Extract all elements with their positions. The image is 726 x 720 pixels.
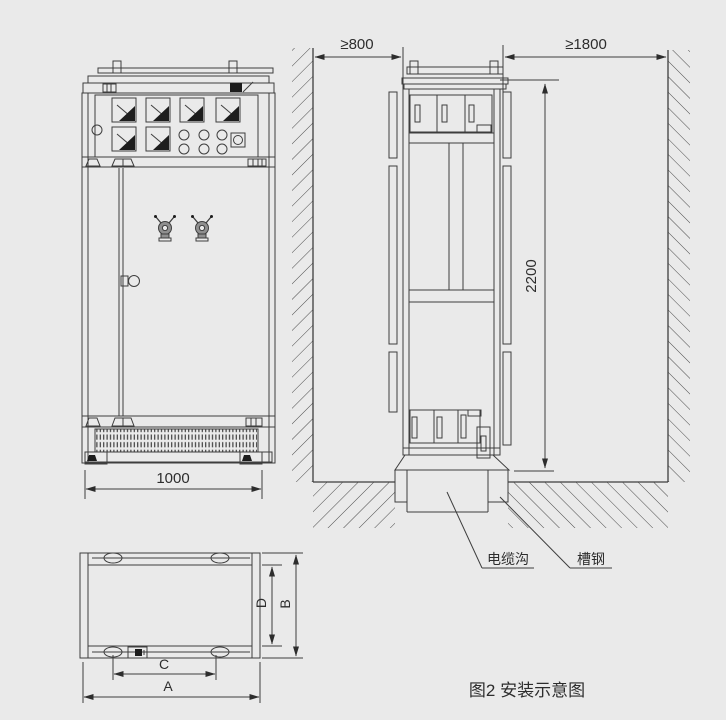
vent-grille	[95, 429, 258, 452]
floor-right-hatch	[508, 482, 668, 528]
diagram-canvas: 1000	[0, 0, 726, 720]
height-dim-label: 2200	[523, 259, 540, 292]
cap-latch-detail	[230, 83, 242, 92]
right-clearance-label: ≥1800	[565, 36, 607, 53]
front-width-dim-label: 1000	[156, 470, 189, 487]
figure-caption: 图2 安装示意图	[469, 681, 585, 700]
right-wall-hatch	[668, 50, 690, 482]
channel-steel-label: 槽钢	[577, 551, 605, 567]
dim-A-label: A	[163, 678, 173, 694]
floor-left-hatch	[313, 482, 395, 528]
left-clearance-label: ≥800	[340, 36, 373, 53]
dim-C-label: C	[159, 656, 169, 672]
dim-D-label: D	[253, 598, 269, 608]
cable-trench-label: 电缆沟	[487, 551, 529, 567]
left-wall-hatch	[292, 48, 313, 482]
dim-B-label: B	[277, 599, 293, 608]
page-background	[0, 0, 726, 720]
installation-diagram: 1000	[0, 0, 726, 720]
